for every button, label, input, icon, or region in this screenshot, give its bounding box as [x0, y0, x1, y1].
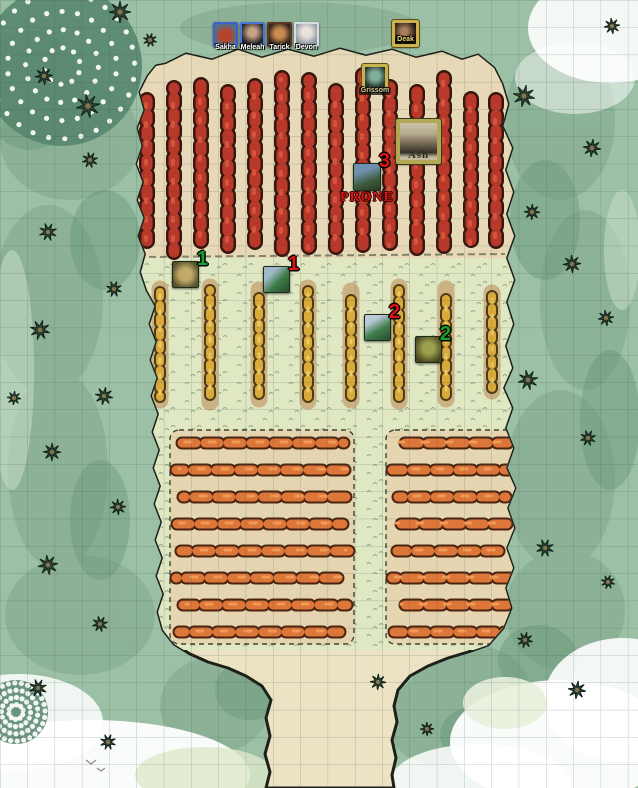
map-token-prone-figure[interactable]: 3PRONE: [353, 163, 381, 191]
map-artwork: [0, 0, 638, 788]
battle-map[interactable]: DeakGrissomAsh3PRONE1122 SakhaMeleahTari…: [0, 0, 638, 788]
prone-status-label: PRONE: [340, 190, 394, 206]
party-token-sakha[interactable]: Sakha: [213, 22, 238, 47]
map-token-combatant-green-2[interactable]: 2: [415, 336, 442, 363]
initiative-marker: 1: [288, 254, 299, 274]
map-token-grissom[interactable]: Grissom: [362, 64, 388, 90]
token-label: Ash: [408, 151, 429, 159]
map-token-ash[interactable]: Ash: [396, 119, 441, 164]
party-token-tarick[interactable]: Tarick: [267, 22, 292, 47]
token-label: Deak: [395, 36, 416, 44]
map-token-combatant-red-1[interactable]: 1: [263, 266, 290, 293]
party-token-meleah[interactable]: Meleah: [240, 22, 265, 47]
initiative-marker: 1: [197, 249, 208, 269]
map-token-combatant-green-1[interactable]: 1: [172, 261, 199, 288]
initiative-marker: 2: [389, 302, 400, 322]
party-token-devon[interactable]: Devon: [294, 22, 319, 47]
initiative-marker: 2: [440, 324, 451, 344]
initiative-marker: 3: [379, 151, 390, 171]
map-token-deak[interactable]: Deak: [392, 20, 419, 47]
map-token-combatant-red-2[interactable]: 2: [364, 314, 391, 341]
